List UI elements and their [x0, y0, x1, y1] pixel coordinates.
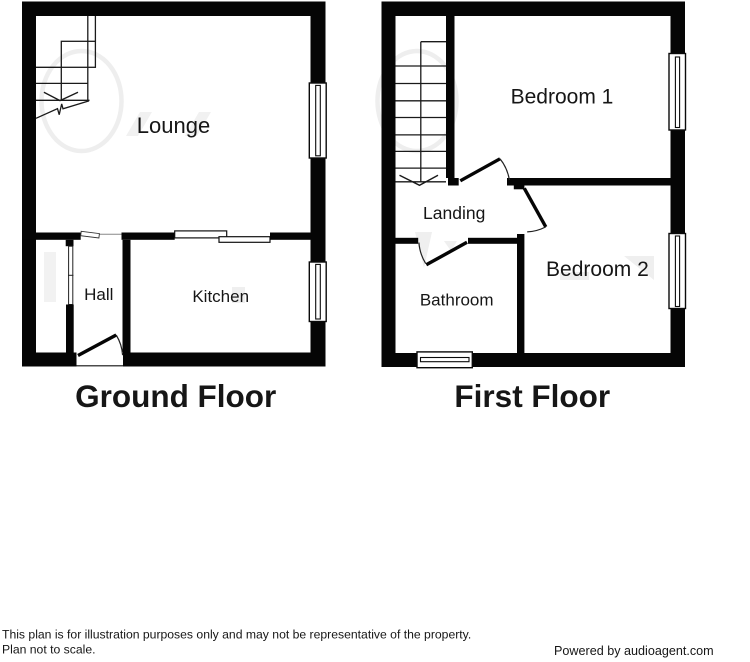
svg-text:First Floor: First Floor — [454, 378, 610, 414]
svg-text:Bathroom: Bathroom — [420, 290, 494, 309]
svg-text:Powered by audioagent.com: Powered by audioagent.com — [554, 644, 714, 658]
svg-text:Hall: Hall — [84, 285, 113, 304]
svg-text:Ground Floor: Ground Floor — [75, 378, 276, 414]
svg-text:Landing: Landing — [423, 203, 485, 223]
svg-text:Plan not to scale.: Plan not to scale. — [2, 642, 96, 656]
svg-text:Kitchen: Kitchen — [192, 287, 249, 306]
svg-text:Bedroom 1: Bedroom 1 — [511, 86, 614, 109]
svg-text:Lounge: Lounge — [137, 113, 210, 138]
svg-text:This plan is for illustration: This plan is for illustration purposes o… — [2, 628, 471, 642]
svg-text:Bedroom 2: Bedroom 2 — [546, 258, 649, 281]
